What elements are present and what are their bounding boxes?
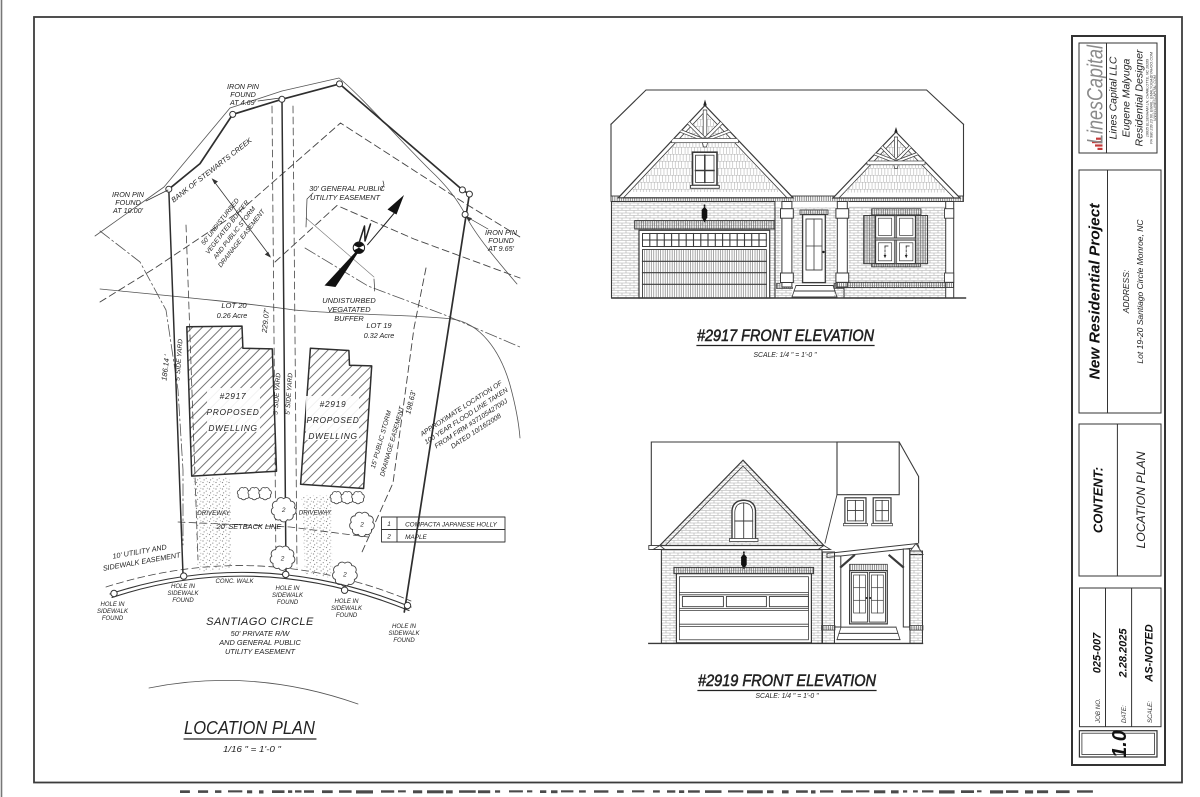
svg-text:LOCATION PLAN: LOCATION PLAN [1136, 451, 1148, 549]
svg-text:DWELLING: DWELLING [308, 431, 357, 441]
svg-text:SANTIAGO CIRCLE: SANTIAGO CIRCLE [206, 616, 314, 628]
svg-text:2.28.2025: 2.28.2025 [1118, 628, 1130, 679]
svg-text:UTILITY EASEMENT: UTILITY EASEMENT [310, 193, 381, 202]
svg-text:New Residential Project: New Residential Project [1088, 202, 1104, 379]
svg-text:SIDEWALK: SIDEWALK [97, 609, 129, 615]
svg-text:025-007: 025-007 [1092, 632, 1104, 673]
svg-text:AT 4.69': AT 4.69' [229, 98, 257, 107]
svg-text:UTILITY EASEMENT: UTILITY EASEMENT [225, 647, 296, 656]
svg-text:#2917 FRONT ELEVATION: #2917 FRONT ELEVATION [697, 327, 874, 345]
svg-text:SIDEWALK: SIDEWALK [331, 606, 363, 612]
svg-text:JOB NO.: JOB NO. [1095, 698, 1102, 724]
svg-text:HOLE IN: HOLE IN [275, 586, 300, 592]
svg-text:Lines Capital LLC: Lines Capital LLC [1108, 56, 1120, 139]
svg-text:SCALE: 1/4 " = 1'-0 ": SCALE: 1/4 " = 1'-0 " [756, 691, 819, 700]
svg-text:HOLE IN: HOLE IN [334, 599, 359, 605]
svg-text:DRIVEWAY: DRIVEWAY [299, 510, 332, 517]
svg-text:Lot 19-20 Santiago Circle Monr: Lot 19-20 Santiago Circle Monroe, NC [1135, 219, 1145, 364]
svg-text:0.26 Acre: 0.26 Acre [217, 311, 248, 320]
svg-text:HOLE IN: HOLE IN [100, 602, 125, 608]
svg-text:SIDEWALK: SIDEWALK [168, 591, 200, 597]
svg-text:2: 2 [281, 507, 286, 514]
svg-text:DATE:: DATE: [1121, 705, 1128, 723]
svg-text:CONTENT:: CONTENT: [1091, 467, 1106, 533]
svg-text:#2919 FRONT ELEVATION: #2919 FRONT ELEVATION [698, 672, 876, 690]
svg-text:LinesCapital: LinesCapital [1083, 44, 1108, 144]
svg-text:SIDEWALK: SIDEWALK [389, 631, 421, 637]
svg-text:SCALE: 1/4 " = 1'-0 ": SCALE: 1/4 " = 1'-0 " [754, 350, 817, 359]
svg-text:COMPACTA JAPANESE HOLLY: COMPACTA JAPANESE HOLLY [405, 522, 498, 529]
svg-text:2: 2 [359, 522, 364, 529]
svg-text:FOUND: FOUND [102, 616, 124, 622]
svg-text:1: 1 [387, 521, 391, 528]
svg-text:ADDRESS:: ADDRESS: [1121, 269, 1131, 314]
svg-text:2: 2 [280, 556, 285, 563]
svg-text:FOUND: FOUND [393, 638, 415, 644]
svg-text:BUFFER: BUFFER [334, 314, 364, 323]
svg-text:AT 9.65': AT 9.65' [487, 244, 515, 253]
svg-text:VEGATATED: VEGATATED [327, 305, 371, 314]
svg-text:PROPOSED: PROPOSED [206, 407, 259, 417]
svg-text:DWELLING: DWELLING [208, 423, 257, 433]
svg-text:1/16 " = 1'-0 ": 1/16 " = 1'-0 " [223, 744, 282, 754]
svg-text:SCALE:: SCALE: [1147, 701, 1154, 723]
svg-text:FOUND: FOUND [172, 598, 194, 604]
svg-text:#2919: #2919 [320, 399, 347, 409]
svg-text:#2917: #2917 [220, 391, 247, 401]
svg-text:LOT 20: LOT 20 [221, 301, 247, 310]
svg-text:HOLE IN: HOLE IN [171, 584, 196, 590]
svg-text:UNDISTURBED: UNDISTURBED [322, 296, 376, 305]
svg-text:Residential Designer: Residential Designer [1134, 49, 1146, 146]
svg-text:DRIVEWAY: DRIVEWAY [197, 510, 230, 517]
svg-text:CONC. WALK: CONC. WALK [216, 579, 255, 585]
svg-text:SIDEWALK: SIDEWALK [272, 593, 304, 599]
svg-text:30' GENERAL PUBLIC: 30' GENERAL PUBLIC [309, 184, 385, 193]
svg-text:MAPLE: MAPLE [405, 534, 427, 541]
svg-text:50' PRIVATE R/W: 50' PRIVATE R/W [231, 629, 291, 638]
svg-text:20' SETBACK LINE: 20' SETBACK LINE [216, 522, 282, 531]
svg-text:WWW.LINESCAPITAL.COM: WWW.LINESCAPITAL.COM [1153, 75, 1157, 121]
svg-text:1.0: 1.0 [1109, 730, 1131, 758]
svg-text:FOUND: FOUND [336, 613, 358, 619]
svg-text:PROPOSED: PROPOSED [306, 415, 359, 425]
svg-text:HOLE IN: HOLE IN [392, 624, 417, 630]
svg-text:2: 2 [342, 572, 347, 579]
svg-text:Eugene Malyuga: Eugene Malyuga [1121, 58, 1133, 137]
svg-text:2: 2 [386, 534, 391, 541]
svg-text:0.32 Acre: 0.32 Acre [364, 331, 395, 340]
svg-text:LOT 19: LOT 19 [366, 321, 392, 330]
svg-text:FOUND: FOUND [277, 600, 299, 606]
svg-text:AND GENERAL PUBLIC: AND GENERAL PUBLIC [218, 638, 301, 647]
svg-text:AS-NOTED: AS-NOTED [1144, 624, 1156, 683]
svg-text:AT 10.00': AT 10.00' [112, 206, 144, 215]
svg-text:LOCATION PLAN: LOCATION PLAN [184, 717, 316, 738]
